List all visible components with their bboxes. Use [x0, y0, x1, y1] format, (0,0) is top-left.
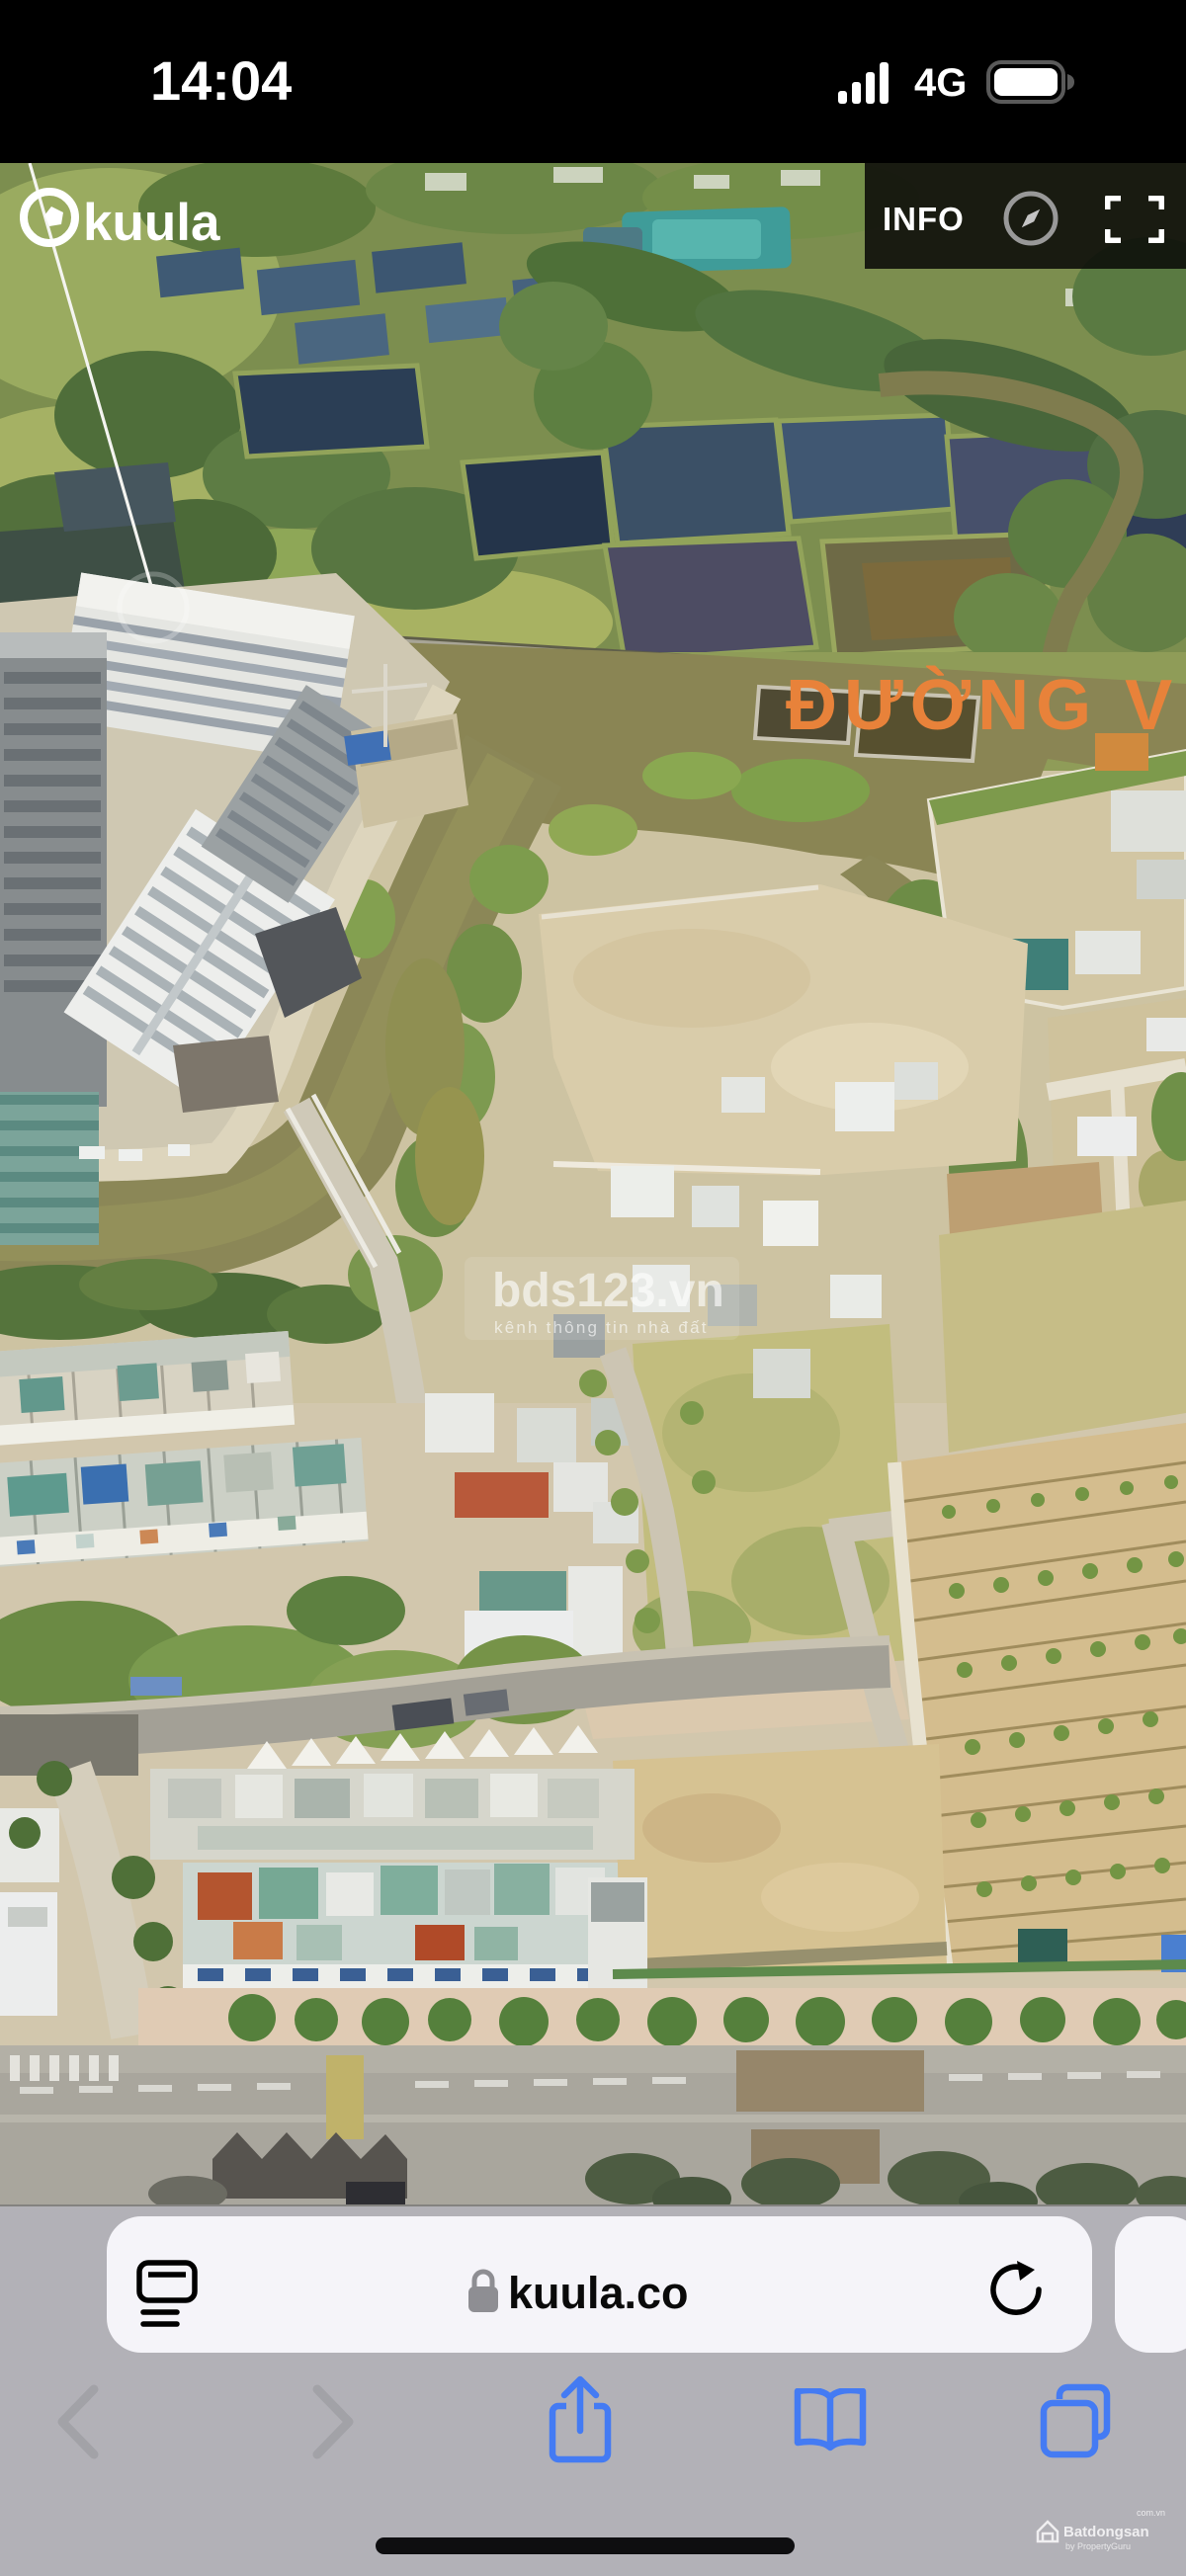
svg-text:ĐƯỜNG V: ĐƯỜNG V [786, 665, 1179, 745]
svg-text:Batdongsan: Batdongsan [1063, 2524, 1149, 2540]
svg-text:kênh thông tin nhà đất: kênh thông tin nhà đất [494, 1318, 709, 1337]
svg-text:by PropertyGuru: by PropertyGuru [1065, 2541, 1131, 2551]
svg-text:com.vn: com.vn [1137, 2508, 1165, 2518]
svg-text:kuula: kuula [83, 194, 220, 252]
svg-text:bds123.vn: bds123.vn [492, 1265, 724, 1317]
